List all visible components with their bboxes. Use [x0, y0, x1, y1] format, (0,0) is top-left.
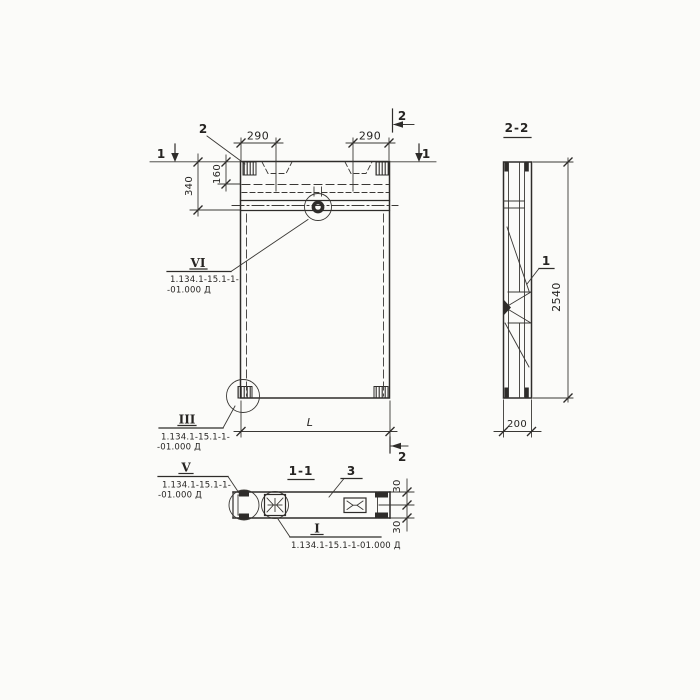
- callout-vi-leader: [231, 220, 308, 272]
- key-plate: [344, 498, 366, 513]
- lifting-recess-right: [345, 162, 372, 174]
- callout-iii-leader: [223, 406, 235, 428]
- section2-mark-bottom: 2: [390, 437, 408, 464]
- panel-outline: [241, 162, 390, 399]
- lifting-recess-left: [262, 162, 292, 174]
- channel-end-left: [238, 491, 249, 520]
- dim-30-top-text: 30: [392, 479, 403, 492]
- callout-i-label: I: [314, 522, 320, 536]
- callout-iii-ref2: -01.000 Д: [157, 443, 201, 453]
- dim-200-text: 200: [507, 419, 527, 430]
- detail-balloon-top: [305, 194, 332, 221]
- section1-mark-left: 1: [150, 144, 240, 162]
- plan-section: 1-1: [229, 464, 414, 534]
- callout-v-label: V: [180, 461, 191, 475]
- side-anchor-top-right: [525, 163, 529, 172]
- dim-L-text: L: [307, 416, 314, 429]
- callout-i-ref: 1.134.1-15.1-1-01.000 Д: [291, 541, 401, 551]
- callout-iii: III 1.134.1-15.1-1- -01.000 Д: [157, 406, 235, 453]
- callout-v: V 1.134.1-15.1-1- -01.000 Д: [158, 461, 239, 501]
- item-2-label: 2: [199, 122, 207, 136]
- section-arrow-left-bottom: [391, 443, 401, 450]
- dim-290-right-text: 290: [359, 130, 381, 143]
- dim-160-text: 160: [212, 164, 223, 184]
- dim-290-left: 290: [234, 130, 283, 192]
- section1-label-left: 1: [157, 147, 165, 161]
- side-anchor-bottom-right: [525, 388, 529, 398]
- plan-section-title: 1-1: [289, 464, 314, 478]
- side-view-outline: [504, 162, 532, 398]
- keyway-vertex: [504, 300, 511, 315]
- side-view-title: 2-2: [505, 121, 530, 135]
- panel-drawing: 1 1 2 2 290: [0, 0, 700, 700]
- callout-vi-ref2: -01.000 Д: [167, 286, 211, 296]
- section1-mark-right: 1: [390, 144, 436, 162]
- dim-2540-text: 2540: [550, 282, 563, 312]
- blueprint-page: 1 1 2 2 290: [0, 0, 700, 700]
- callout-iii-ref1: 1.134.1-15.1-1-: [161, 433, 230, 443]
- side-view: 2-2 1: [494, 121, 573, 437]
- plan-anchor-top: [375, 493, 388, 498]
- callout-vi: VI 1.134.1-15.1-1- -01.000 Д: [167, 220, 308, 296]
- section-arrow-down-left: [171, 153, 179, 162]
- callout-iii-label: III: [179, 413, 196, 427]
- side-anchor-bottom-left: [505, 388, 509, 398]
- anchor-top-right: [376, 162, 389, 175]
- dim-160: 160: [212, 155, 240, 191]
- anchor-bottom-left: [238, 387, 252, 399]
- dim-30-bottom-text: 30: [392, 520, 403, 533]
- callout-v-ref1: 1.134.1-15.1-1-: [162, 481, 231, 491]
- anchor-bottom-right: [374, 387, 388, 399]
- section1-label-right: 1: [422, 147, 430, 161]
- side-item-1-label: 1: [542, 254, 550, 268]
- dim-290-right: 290: [346, 130, 395, 192]
- callout-vi-ref1: 1.134.1-15.1-1-: [170, 275, 239, 285]
- section2-label-top: 2: [398, 109, 406, 123]
- dim-290-left-text: 290: [247, 130, 269, 143]
- callout-vi-label: VI: [190, 256, 206, 270]
- item-3-label: 3: [347, 464, 355, 478]
- dim-2540: 2540: [533, 158, 573, 403]
- side-anchor-top-left: [505, 163, 509, 172]
- section2-label-bottom: 2: [398, 450, 406, 464]
- callout-i: I 1.134.1-15.1-1-01.000 Д: [278, 519, 401, 551]
- bolt-box: [262, 492, 289, 519]
- dim-L: L: [234, 401, 397, 437]
- bolt-detail: [305, 187, 332, 221]
- dim-200: 200: [494, 400, 541, 437]
- callout-v-ref2: -01.000 Д: [158, 491, 202, 501]
- callout-i-leader: [278, 519, 290, 537]
- dim-340: 340: [184, 154, 240, 216]
- dim-340-text: 340: [184, 176, 195, 196]
- dim-30-group: 30 30: [379, 479, 414, 534]
- section2-mark-top: 2: [393, 109, 415, 132]
- plan-anchor-bottom: [375, 513, 388, 518]
